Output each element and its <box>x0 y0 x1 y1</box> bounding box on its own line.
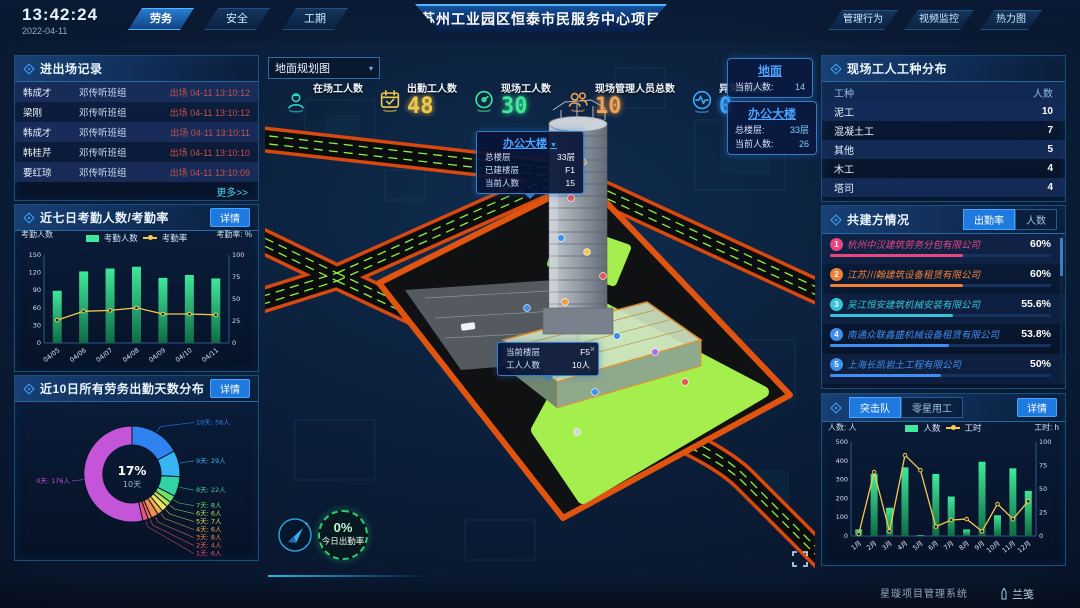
rank-badge: 5 <box>830 358 843 371</box>
exit-status: 出场 04-11 13:10:11 <box>170 126 250 139</box>
x-tick-label: 1月 <box>850 539 863 552</box>
tick-label: 30 <box>33 321 41 329</box>
office-building-info-box[interactable]: 办公大楼 总楼层:33层 当前人数:26 <box>727 101 817 155</box>
partner-row[interactable]: 3吴江恒安建筑机械安装有限公司55.6% <box>822 294 1065 324</box>
worker-type-row[interactable]: 其他5 <box>822 140 1065 159</box>
stat-text: 现场工人数30 <box>501 80 551 119</box>
donut-label: 3天: 8人 <box>196 534 222 542</box>
rank-badge: 2 <box>830 268 843 281</box>
scrollbar[interactable] <box>1060 238 1063 382</box>
panel-title: 共建方情况 <box>847 211 910 228</box>
legend-bar-swatch <box>86 235 99 242</box>
partners-tabs: 出勤率 人数 <box>963 209 1057 230</box>
legend-line-swatch <box>946 427 960 429</box>
panel-header: 近七日考勤人数/考勤率 详情 <box>15 205 258 231</box>
tick-label: 25 <box>232 317 240 325</box>
rank-badge: 1 <box>830 238 843 251</box>
x-tick-label: 04/07 <box>95 346 115 364</box>
partner-row[interactable]: 4南通众联鑫盛机械设备租赁有限公司53.8% <box>822 324 1065 354</box>
panel-header: 现场工人工种分布 <box>822 56 1065 82</box>
x-tick-label: 5月 <box>911 539 924 552</box>
partner-row-top: 5上海长凯岩土工程有限公司50% <box>830 357 1051 371</box>
tooltip-row: 总楼层33层 <box>485 151 575 164</box>
partners-panel: 共建方情况 出勤率 人数 1杭州中汉建筑劳务分包有限公司60%2江苏川翰建筑设备… <box>821 205 1066 389</box>
trend-point <box>965 517 969 521</box>
map-edge-glow <box>268 575 428 577</box>
partner-row[interactable]: 5上海长凯岩土工程有限公司50% <box>822 354 1065 384</box>
donut-label: 0天: 176人 <box>36 477 70 485</box>
donut-label: 1天: 6人 <box>196 550 222 558</box>
chart-legend: 人数 工时 <box>822 422 1065 434</box>
progress-fill <box>830 344 949 347</box>
bar <box>917 535 924 536</box>
chevron-down-icon: ▾ <box>369 64 373 73</box>
worker-type-row[interactable]: 混凝土工7 <box>822 121 1065 140</box>
stat-item: 在场工人数 <box>283 80 363 119</box>
stat-label: 现场工人数 <box>501 80 551 95</box>
legend-line-swatch <box>143 237 157 239</box>
diamond-icon <box>23 212 34 223</box>
bar <box>211 278 220 343</box>
info-box-row: 当前人数:14 <box>735 80 805 94</box>
donut-label: 9天: 29人 <box>196 457 226 465</box>
weekly-attendance-panel: 近七日考勤人数/考勤率 详情 考勤人数 考勤率 考勤人数 考勤率: % 0306… <box>14 204 259 372</box>
worker-icon <box>283 88 309 114</box>
compass-icon[interactable]: + <box>276 516 314 554</box>
partner-row-top: 2江苏川翰建筑设备租赁有限公司60% <box>830 267 1051 281</box>
clock: 13:42:24 2022-04-11 <box>22 5 98 36</box>
exit-status: 出场 04-11 13:10:12 <box>170 106 250 119</box>
x-tick-label: 12月 <box>1016 539 1033 554</box>
ground-info-box[interactable]: 地面 当前人数:14 <box>727 58 813 98</box>
nav-tab-safety[interactable]: 安全 <box>204 8 270 30</box>
partner-row[interactable]: 6江苏洁绍建筑安装工程有限公司35.4% <box>822 384 1065 389</box>
exit-status: 出场 04-11 13:10:12 <box>170 86 250 99</box>
progress-track <box>830 254 1051 257</box>
fullscreen-icon[interactable] <box>791 550 809 568</box>
brand-logo: 兰笺 <box>999 586 1034 602</box>
trend-line <box>859 455 1029 534</box>
stat-value: 10 <box>595 95 675 119</box>
trend-point <box>161 312 165 316</box>
tick-label: 50 <box>1039 485 1047 493</box>
brand-tower-icon <box>999 588 1009 600</box>
craft-name: 木工 <box>834 161 854 176</box>
stat-item: 现场管理人员总数10 <box>565 80 675 119</box>
svg-text:+: + <box>305 522 309 528</box>
team-name: 邓传听班组 <box>79 125 170 139</box>
tooltip-row: 工人人数10人 <box>506 359 590 372</box>
diamond-icon <box>23 63 34 74</box>
trend-point <box>1027 499 1031 503</box>
panel-title: 近七日考勤人数/考勤率 <box>40 209 169 226</box>
bar <box>948 497 955 536</box>
pulse-icon <box>689 88 715 114</box>
partner-row[interactable]: 2江苏川翰建筑设备租赁有限公司60% <box>822 264 1065 294</box>
info-box-title[interactable]: 地面 <box>735 62 805 79</box>
tick-label: 100 <box>1039 438 1051 446</box>
tick-label: 60 <box>33 304 41 312</box>
stat-label: 在场工人数 <box>313 80 363 95</box>
table-header: 工种 人数 <box>822 82 1065 102</box>
diamond-icon <box>23 383 34 394</box>
trend-point <box>857 532 861 536</box>
tick-label: 25 <box>1039 509 1047 517</box>
legend-label: 考勤人数 <box>104 232 138 244</box>
attendance-percent: 0% <box>320 520 366 535</box>
tick-label: 120 <box>29 269 41 277</box>
tab-headcount[interactable]: 人数 <box>1015 209 1057 230</box>
tick-label: 300 <box>836 476 848 484</box>
worker-type-row[interactable]: 木工4 <box>822 159 1065 178</box>
distribution-panel: 近10日所有劳务出勤天数分布 详情 10天: 56人9天: 29人8天: 22人… <box>14 375 259 561</box>
tick-label: 0 <box>37 339 41 347</box>
nav-tab-labor[interactable]: 劳务 <box>128 8 194 30</box>
entry-exit-row[interactable]: 韩桂芹邓传听班组出场 04-11 13:10:10 <box>15 142 258 162</box>
partner-row-top: 4南通众联鑫盛机械设备租赁有限公司53.8% <box>830 327 1051 341</box>
donut-label: 2天: 4人 <box>196 542 222 550</box>
x-tick-label: 04/05 <box>42 346 62 364</box>
donut-label: 10天: 56人 <box>196 418 230 426</box>
x-tick-label: 10月 <box>985 539 1002 554</box>
progress-track <box>830 314 1051 317</box>
progress-fill <box>830 374 941 377</box>
progress-track <box>830 284 1051 287</box>
attendance-percent: 53.8% <box>1021 328 1051 340</box>
tick-label: 500 <box>836 438 848 446</box>
x-tick-label: 8月 <box>958 539 971 552</box>
nav-tab-video[interactable]: 视频监控 <box>904 10 974 30</box>
stat-text: 现场管理人员总数10 <box>595 80 675 119</box>
partner-name: 上海长凯岩土工程有限公司 <box>847 357 1026 371</box>
top-bar: 13:42:24 2022-04-11 劳务 安全 工期 苏州工业园区恒泰市民服… <box>0 0 1080 42</box>
attendance-percent: 60% <box>1030 268 1051 280</box>
rank-badge: 6 <box>830 388 843 390</box>
diamond-icon <box>830 402 841 413</box>
trend-point <box>919 468 923 472</box>
weekly-attendance-chart[interactable]: 0306090120150025507510004/0504/0604/0704… <box>20 249 253 367</box>
worker-name: 韩成才 <box>23 125 79 139</box>
craft-count: 4 <box>1047 163 1053 174</box>
stat-value: 30 <box>501 95 551 119</box>
worker-type-panel: 现场工人工种分布 工种 人数 泥工10混凝土工7其他5木工4塔司4 <box>821 55 1066 202</box>
tab-assault-team[interactable]: 突击队 <box>849 397 901 418</box>
assault-team-panel: 突击队 零星用工 详情 人数 工时 人数: 人 工时: h 0100200300… <box>821 393 1066 566</box>
tick-label: 75 <box>1039 462 1047 470</box>
people-icon <box>565 88 591 114</box>
trend-point <box>82 310 86 314</box>
craft-name: 混凝土工 <box>834 123 874 138</box>
building-tooltip-title[interactable]: 办公大楼▼ <box>485 135 575 151</box>
tick-label: 0 <box>232 339 236 347</box>
trend-point <box>996 502 1000 506</box>
panel-header: 突击队 零星用工 详情 <box>822 394 1065 422</box>
partner-rows: 1杭州中汉建筑劳务分包有限公司60%2江苏川翰建筑设备租赁有限公司60%3吴江恒… <box>822 234 1065 389</box>
tick-label: 400 <box>836 457 848 465</box>
attendance-percent: 50% <box>1030 358 1051 370</box>
rank-badge: 4 <box>830 328 843 341</box>
stat-value: 48 <box>407 95 457 119</box>
detail-button[interactable]: 详情 <box>210 379 250 398</box>
donut-center-percent: 17% <box>118 464 147 478</box>
tick-label: 0 <box>844 532 848 540</box>
bar <box>994 515 1001 536</box>
chevron-down-icon: ▼ <box>550 142 557 149</box>
tooltip-row: 已建楼层F1 <box>485 164 575 177</box>
craft-count: 4 <box>1047 182 1053 193</box>
bar <box>132 267 141 343</box>
entry-exit-rows: 韩成才邓传听班组出场 04-11 13:10:12梁刚邓传听班组出场 04-11… <box>15 82 258 182</box>
trend-point <box>188 312 192 316</box>
bar <box>106 268 115 343</box>
panel-title: 进出场记录 <box>40 60 103 77</box>
trend-point <box>903 453 907 457</box>
partner-row-top: 1杭州中汉建筑劳务分包有限公司60% <box>830 237 1051 251</box>
rank-badge: 3 <box>830 298 843 311</box>
team-name: 邓传听班组 <box>79 165 170 179</box>
legend-bar-swatch <box>905 425 918 432</box>
craft-name: 泥工 <box>834 104 854 119</box>
team-name: 邓传听班组 <box>79 105 170 119</box>
stat-item: 出勤工人数48 <box>377 80 457 119</box>
tab-attendance-rate[interactable]: 出勤率 <box>963 209 1015 230</box>
trend-point <box>108 309 112 313</box>
tick-label: 150 <box>29 251 41 259</box>
column-header: 工种 <box>834 85 854 100</box>
left-axis-caption: 考勤人数 <box>21 229 53 240</box>
trend-point <box>949 518 953 522</box>
nav-tab-heatmap[interactable]: 热力图 <box>980 10 1042 30</box>
stat-item: 现场工人数30 <box>471 80 551 119</box>
donut-label: 7天: 8人 <box>196 502 222 510</box>
calendar-check-icon <box>377 88 403 114</box>
right-axis-caption: 工时: h <box>1034 422 1059 433</box>
panel-title: 现场工人工种分布 <box>847 60 947 77</box>
detail-button[interactable]: 详情 <box>210 208 250 227</box>
right-axis-caption: 考勤率: % <box>216 229 252 240</box>
diamond-icon <box>830 214 841 225</box>
entry-exit-row[interactable]: 要红琼邓传听班组出场 04-11 13:10:09 <box>15 162 258 182</box>
craft-name: 塔司 <box>834 180 854 195</box>
trend-point <box>1011 517 1015 521</box>
progress-fill <box>830 254 963 257</box>
partner-row-top: 6江苏洁绍建筑安装工程有限公司35.4% <box>830 387 1051 389</box>
footer-bar: 星璇项目管理系统 兰笺 <box>0 580 1080 608</box>
more-link[interactable]: 更多>> <box>15 182 258 201</box>
craft-count: 7 <box>1047 125 1053 136</box>
system-name: 星璇项目管理系统 <box>880 585 968 600</box>
trend-point <box>872 470 876 474</box>
trend-point <box>934 525 938 529</box>
partner-row[interactable]: 1杭州中汉建筑劳务分包有限公司60% <box>822 234 1065 264</box>
worker-type-row[interactable]: 泥工10 <box>822 102 1065 121</box>
info-box-row: 总楼层:33层 <box>735 123 809 137</box>
trend-point <box>214 313 218 317</box>
worker-name: 梁刚 <box>23 105 79 119</box>
partner-name: 江苏川翰建筑设备租赁有限公司 <box>847 267 1026 281</box>
tooltip-row: 当前楼层F5 <box>506 346 590 359</box>
tooltip-row: 当前人数15 <box>485 177 575 190</box>
x-tick-label: 2月 <box>865 539 878 552</box>
today-attendance-ring[interactable]: 0% 今日出勤率 <box>318 510 368 560</box>
progress-fill <box>830 284 963 287</box>
panel-header: 近10日所有劳务出勤天数分布 详情 <box>15 376 258 402</box>
team-name: 邓传听班组 <box>79 145 170 159</box>
tick-label: 90 <box>33 286 41 294</box>
tick-label: 100 <box>836 513 848 521</box>
legend-label: 工时 <box>965 422 982 434</box>
x-tick-label: 7月 <box>942 539 955 552</box>
x-tick-label: 9月 <box>973 539 986 552</box>
detail-button[interactable]: 详情 <box>1017 398 1057 417</box>
x-tick-label: 3月 <box>880 539 893 552</box>
left-axis-caption: 人数: 人 <box>828 422 856 433</box>
attendance-percent: 55.6% <box>1021 298 1051 310</box>
nav-tab-schedule[interactable]: 工期 <box>282 8 348 30</box>
x-tick-label: 4月 <box>896 539 909 552</box>
bar <box>79 271 88 343</box>
x-tick-label: 11月 <box>1001 539 1018 554</box>
bar <box>901 467 908 536</box>
stat-text: 出勤工人数48 <box>407 80 457 119</box>
x-tick-label: 04/08 <box>121 346 141 364</box>
entry-exit-panel: 进出场记录 韩成才邓传听班组出场 04-11 13:10:12梁刚邓传听班组出场… <box>14 55 259 201</box>
craft-count: 5 <box>1047 144 1053 155</box>
stat-text: 在场工人数 <box>313 80 363 95</box>
building-tooltip[interactable]: 办公大楼▼ 总楼层33层 已建楼层F1 当前人数15 <box>476 131 584 194</box>
worker-name: 要红琼 <box>23 165 79 179</box>
legend-label: 人数 <box>923 422 940 434</box>
partner-name: 吴江恒安建筑机械安装有限公司 <box>847 297 1017 311</box>
nav-tab-management[interactable]: 管理行为 <box>828 10 898 30</box>
entry-exit-row[interactable]: 梁刚邓传听班组出场 04-11 13:10:12 <box>15 102 258 122</box>
x-tick-label: 04/10 <box>174 346 194 364</box>
worker-name: 韩成才 <box>23 85 79 99</box>
assault-team-chart[interactable]: 010020030040050002550751001月2月3月4月5月6月7月… <box>827 436 1060 564</box>
attendance-percent: 35.4% <box>1021 388 1051 389</box>
tab-casual-labor[interactable]: 零星用工 <box>901 397 963 418</box>
x-tick-label: 6月 <box>927 539 940 552</box>
donut-label: 4天: 6人 <box>196 526 222 534</box>
partner-name: 江苏洁绍建筑安装工程有限公司 <box>847 387 1017 389</box>
floor-tooltip[interactable]: × 当前楼层F5 工人人数10人 <box>497 342 599 376</box>
progress-fill <box>830 314 953 317</box>
map-view-select[interactable]: 地面规划图 ▾ <box>268 57 380 79</box>
legend-label: 考勤率 <box>162 232 188 244</box>
scrollbar-thumb[interactable] <box>1060 238 1063 276</box>
bar <box>158 278 167 343</box>
donut-center-label: 10天 <box>123 480 141 489</box>
dashboard-root: 13:42:24 2022-04-11 劳务 安全 工期 苏州工业园区恒泰市民服… <box>0 0 1080 608</box>
panel-title: 近10日所有劳务出勤天数分布 <box>40 380 204 397</box>
attendance-percent: 60% <box>1030 238 1051 250</box>
bar <box>1025 491 1032 536</box>
current-time: 13:42:24 <box>22 5 98 25</box>
tick-label: 75 <box>232 273 240 281</box>
panel-header: 共建方情况 出勤率 人数 <box>822 206 1065 234</box>
stat-label: 出勤工人数 <box>407 80 457 95</box>
x-tick-label: 04/06 <box>68 346 88 364</box>
partner-row-top: 3吴江恒安建筑机械安装有限公司55.6% <box>830 297 1051 311</box>
diamond-icon <box>830 63 841 74</box>
worker-type-row[interactable]: 塔司4 <box>822 178 1065 197</box>
craft-count: 10 <box>1042 106 1053 117</box>
partner-name: 杭州中汉建筑劳务分包有限公司 <box>847 237 1026 251</box>
close-icon[interactable]: × <box>590 344 595 354</box>
trend-point <box>55 318 59 322</box>
tick-label: 0 <box>1039 532 1043 540</box>
bar <box>979 462 986 536</box>
bar <box>1009 468 1016 536</box>
craft-name: 其他 <box>834 142 854 157</box>
donut-label: 5天: 7人 <box>196 518 222 526</box>
tick-label: 100 <box>232 251 244 259</box>
attendance-days-donut-chart[interactable]: 10天: 56人9天: 29人8天: 22人7天: 8人6天: 6人5天: 7人… <box>20 402 253 560</box>
panel-header: 进出场记录 <box>15 56 258 82</box>
stats-row: 在场工人数出勤工人数48现场工人数30现场管理人员总数10异常出勤数0 <box>283 80 743 119</box>
map-view-value: 地面规划图 <box>275 60 330 76</box>
bar <box>185 275 194 343</box>
progress-track <box>830 374 1051 377</box>
column-header: 人数 <box>1033 85 1053 100</box>
bar <box>53 291 62 343</box>
donut-label: 6天: 6人 <box>196 510 222 518</box>
info-box-row: 当前人数:26 <box>735 137 809 151</box>
current-date: 2022-04-11 <box>22 26 98 36</box>
info-box-title[interactable]: 办公大楼 <box>735 105 809 122</box>
trend-point <box>888 530 892 534</box>
x-tick-label: 04/09 <box>147 346 167 364</box>
page-title: 苏州工业园区恒泰市民服务中心项目 <box>415 4 667 32</box>
donut-label: 8天: 22人 <box>196 486 226 494</box>
entry-exit-row[interactable]: 韩成才邓传听班组出场 04-11 13:10:12 <box>15 82 258 102</box>
partner-name: 南通众联鑫盛机械设备租赁有限公司 <box>847 327 1017 341</box>
bar <box>963 529 970 536</box>
tick-label: 50 <box>232 295 240 303</box>
stat-label: 现场管理人员总数 <box>595 80 675 95</box>
attendance-ring-label: 今日出勤率 <box>320 535 366 547</box>
team-name: 邓传听班组 <box>79 85 170 99</box>
exit-status: 出场 04-11 13:10:09 <box>170 166 250 179</box>
entry-exit-row[interactable]: 韩成才邓传听班组出场 04-11 13:10:11 <box>15 122 258 142</box>
exit-status: 出场 04-11 13:10:10 <box>170 146 250 159</box>
x-tick-label: 04/11 <box>200 346 220 364</box>
gauge-icon <box>471 88 497 114</box>
worker-type-rows: 泥工10混凝土工7其他5木工4塔司4 <box>822 102 1065 197</box>
worker-name: 韩桂芹 <box>23 145 79 159</box>
trend-point <box>980 530 984 534</box>
progress-track <box>830 344 1051 347</box>
trend-point <box>135 306 139 310</box>
tick-label: 200 <box>836 494 848 502</box>
